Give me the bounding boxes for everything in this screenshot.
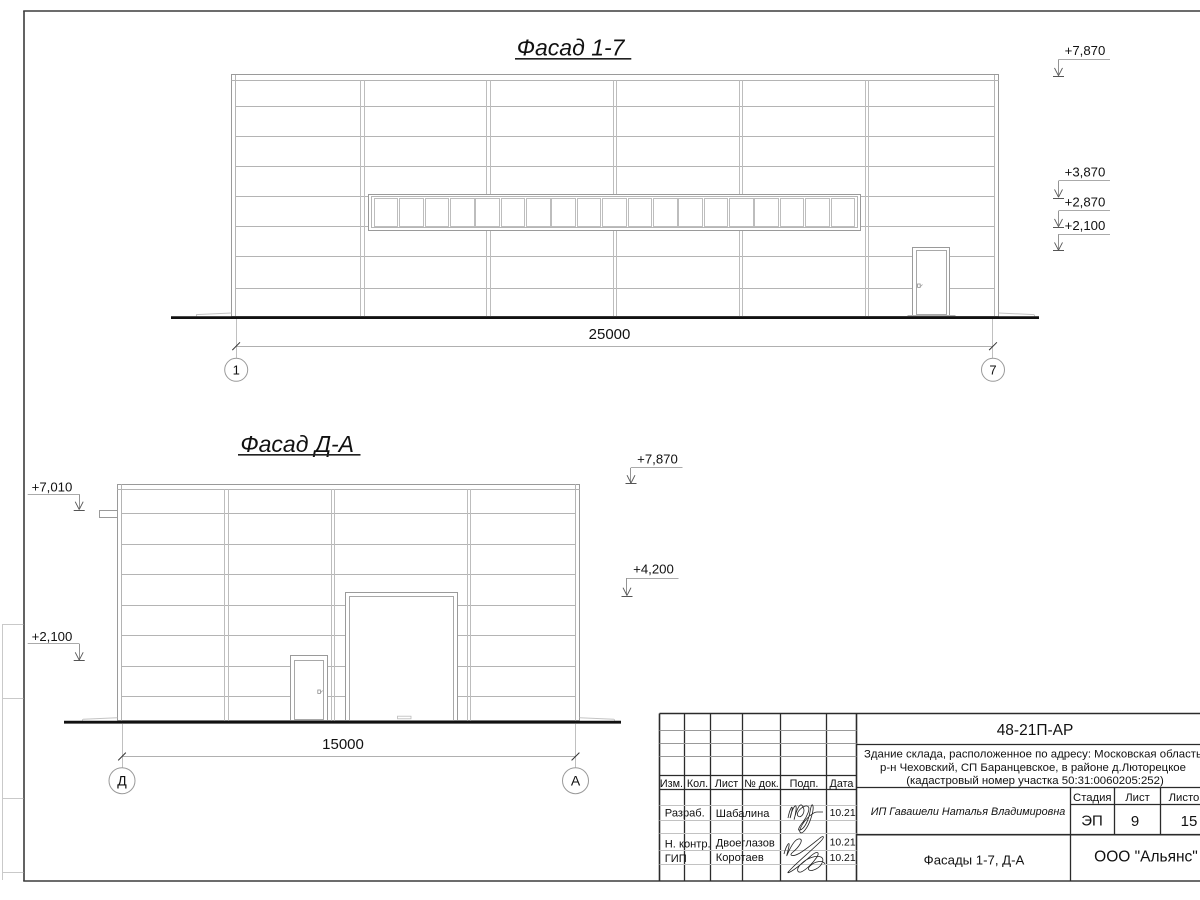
svg-text:48-21П-АР: 48-21П-АР bbox=[997, 722, 1074, 739]
svg-text:Двоеглазов: Двоеглазов bbox=[716, 837, 775, 849]
svg-text:Фасад Д-А: Фасад Д-А bbox=[240, 431, 354, 457]
svg-text:7: 7 bbox=[989, 363, 996, 378]
svg-text:Изм.: Изм. bbox=[660, 778, 683, 790]
svg-text:25000: 25000 bbox=[589, 326, 631, 343]
svg-text:ООО "Альянс": ООО "Альянс" bbox=[1094, 849, 1198, 866]
svg-text:р-н Чеховский, СП Баранцевское: р-н Чеховский, СП Баранцевское, в районе… bbox=[880, 762, 1186, 774]
svg-text:Д: Д bbox=[117, 773, 127, 789]
svg-text:Фасады 1-7, Д-А: Фасады 1-7, Д-А bbox=[924, 853, 1025, 868]
svg-text:№ док.: № док. bbox=[744, 778, 779, 790]
svg-text:+7,010: +7,010 bbox=[32, 479, 73, 494]
svg-text:Здание склада, расположенное п: Здание склада, расположенное по адресу: … bbox=[864, 749, 1200, 761]
svg-text:1: 1 bbox=[233, 363, 240, 378]
svg-text:10.21: 10.21 bbox=[830, 808, 856, 819]
svg-text:+7,870: +7,870 bbox=[1065, 43, 1106, 58]
svg-text:Коротаев: Коротаев bbox=[716, 852, 764, 864]
svg-text:+7,870: +7,870 bbox=[637, 451, 678, 466]
svg-text:15: 15 bbox=[1181, 813, 1198, 830]
svg-text:+2,100: +2,100 bbox=[32, 629, 73, 644]
svg-text:+3,870: +3,870 bbox=[1065, 165, 1106, 180]
svg-text:9: 9 bbox=[1131, 813, 1139, 830]
svg-text:Фасад 1-7: Фасад 1-7 bbox=[517, 35, 626, 61]
svg-text:ИП Гавашели Наталья Владимиров: ИП Гавашели Наталья Владимировна bbox=[871, 806, 1066, 818]
svg-text:Дата: Дата bbox=[830, 778, 854, 790]
svg-text:Шабалина: Шабалина bbox=[716, 808, 770, 820]
svg-text:(кадастровый номер участка 50:: (кадастровый номер участка 50:31:0060205… bbox=[906, 775, 1164, 787]
svg-text:Кол.: Кол. bbox=[687, 778, 708, 790]
svg-text:ГИП: ГИП bbox=[665, 853, 687, 865]
svg-text:+4,200: +4,200 bbox=[633, 562, 674, 577]
svg-text:10.21: 10.21 bbox=[830, 838, 856, 849]
svg-text:Н. контр.: Н. контр. bbox=[665, 838, 711, 850]
svg-text:Лист: Лист bbox=[1125, 792, 1150, 804]
svg-text:Листов: Листов bbox=[1169, 792, 1200, 804]
svg-text:10.21: 10.21 bbox=[830, 853, 856, 864]
svg-text:Подп.: Подп. bbox=[790, 778, 819, 790]
svg-text:+2,100: +2,100 bbox=[1065, 218, 1106, 233]
svg-text:15000: 15000 bbox=[322, 736, 364, 753]
svg-text:Стадия: Стадия bbox=[1073, 792, 1112, 804]
svg-text:Разраб.: Разраб. bbox=[665, 808, 705, 820]
svg-text:ЭП: ЭП bbox=[1081, 813, 1103, 830]
svg-text:Лист: Лист bbox=[715, 778, 739, 790]
svg-text:+2,870: +2,870 bbox=[1065, 195, 1106, 210]
svg-text:А: А bbox=[571, 773, 581, 789]
